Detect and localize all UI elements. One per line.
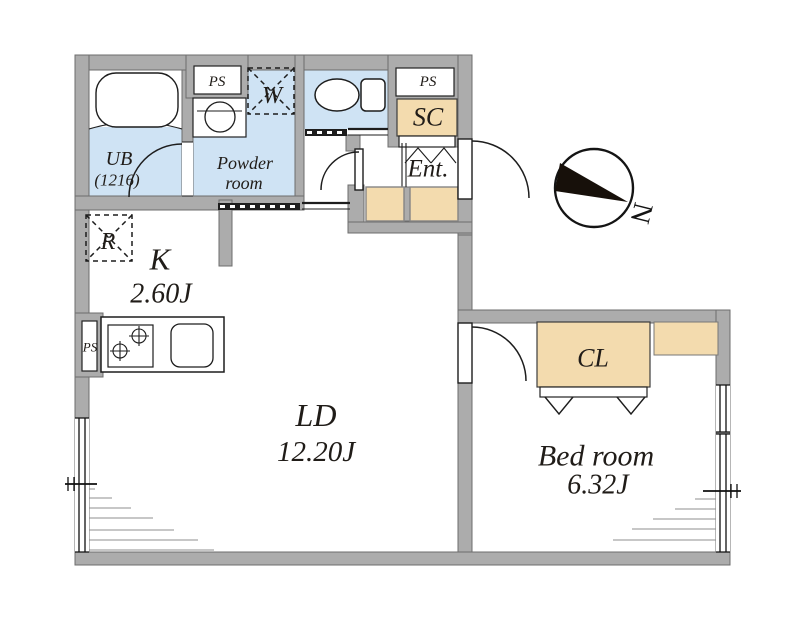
wall-bedroom-top xyxy=(458,310,730,323)
hall-door-swing-arc xyxy=(321,152,359,190)
wall-bottom xyxy=(75,552,730,565)
closet-folding-door-left xyxy=(545,397,573,414)
ld-window xyxy=(75,418,89,552)
toilet-tank xyxy=(361,79,385,111)
closet-label: CL xyxy=(577,344,609,373)
shoe-closet-track xyxy=(399,136,455,147)
open-shelf xyxy=(654,322,718,355)
powder-room-label-2: room xyxy=(225,173,262,193)
bedroom-door-leaf xyxy=(458,323,472,383)
hall-door-leaf xyxy=(355,149,363,190)
toilet-bowl xyxy=(315,79,359,111)
living-dining-area: 12.20J xyxy=(277,436,356,468)
wall-powder-toilet-divider xyxy=(295,55,304,196)
powder-room-label-1: Powder xyxy=(216,153,274,173)
closet-track xyxy=(540,387,647,397)
washing-machine-label: W xyxy=(262,83,284,109)
front-door-leaf xyxy=(458,139,472,199)
bedroom-window-upper xyxy=(716,385,730,432)
front-door-swing-arc xyxy=(472,141,529,198)
floor-plan: N PS W PS SC UB (1216) Powder room Ent. … xyxy=(0,0,800,629)
bedroom-window-lower xyxy=(716,434,730,552)
bathtub xyxy=(96,73,178,127)
bedroom-corner-lines xyxy=(613,499,716,540)
kitchen-label: K xyxy=(149,242,173,277)
genkan-floor-right xyxy=(410,187,458,221)
kitchen-sink xyxy=(171,324,213,367)
closet-folding-door-right xyxy=(617,397,645,414)
pipe-space-bath-label: PS xyxy=(208,74,226,90)
bedroom-door-swing-arc xyxy=(472,327,526,381)
ld-corner-lines xyxy=(89,489,214,550)
ub-door-opening xyxy=(182,142,193,196)
shoe-closet-label: SC xyxy=(413,103,444,132)
bedroom-area: 6.32J xyxy=(567,470,630,501)
north-label: N xyxy=(624,199,659,226)
compass: N xyxy=(555,149,658,227)
floor-plan-canvas: N PS W PS SC UB (1216) Powder room Ent. … xyxy=(0,0,800,629)
unit-bath-size: (1216) xyxy=(94,171,140,190)
refrigerator-label: R xyxy=(100,229,116,255)
bedroom-label: Bed room xyxy=(538,440,654,473)
living-dining-label: LD xyxy=(295,397,337,433)
pipe-space-entrance-label: PS xyxy=(419,74,437,90)
entrance-step-edge xyxy=(402,143,406,187)
genkan-floor-left xyxy=(366,187,404,221)
unit-bath-label: UB xyxy=(106,148,133,170)
kitchen-area: 2.60J xyxy=(130,279,193,310)
wall-porch-bottom xyxy=(348,222,472,233)
wash-basin xyxy=(205,102,235,132)
pipe-space-kitchen-label: PS xyxy=(82,340,98,355)
wall-ld-bedroom-divider xyxy=(458,235,472,552)
entrance-label: Ent. xyxy=(407,156,449,183)
